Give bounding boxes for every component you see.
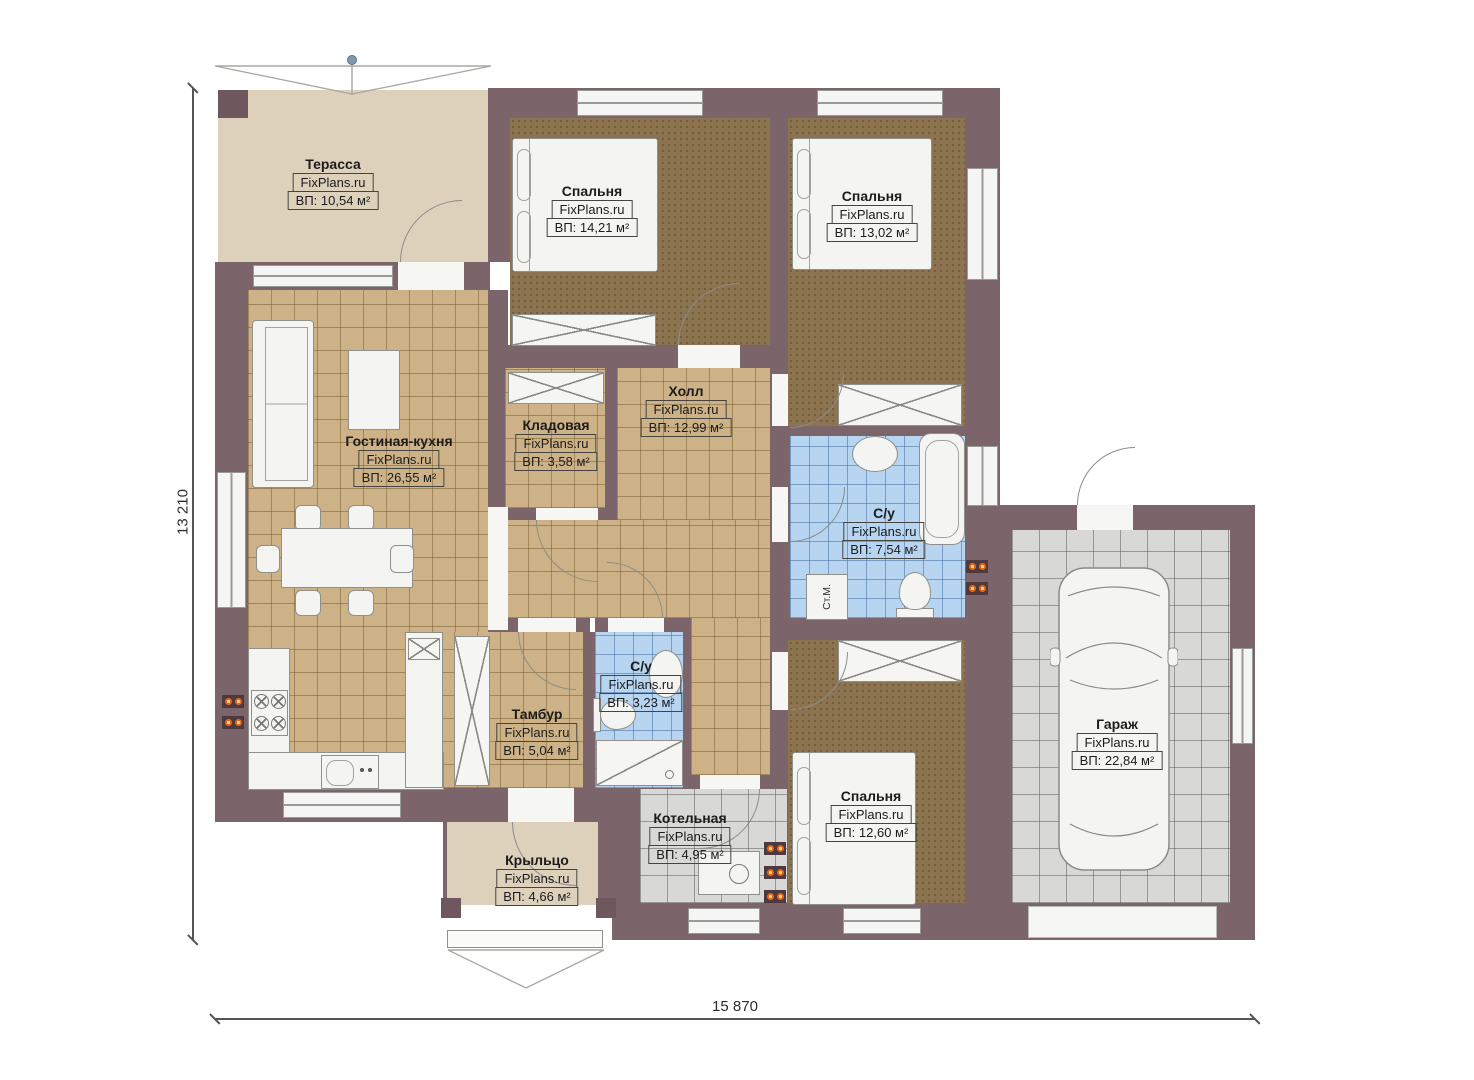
watermark: FixPlans.ru bbox=[496, 723, 577, 742]
door-opening bbox=[398, 262, 464, 290]
room-label-bathroom-small: С/у FixPlans.ru ВП: 3,23 м² bbox=[599, 658, 682, 712]
watermark: FixPlans.ru bbox=[645, 400, 726, 419]
faucet-dot bbox=[368, 768, 372, 772]
porch-step bbox=[447, 930, 603, 948]
radiator bbox=[966, 582, 988, 595]
watermark: FixPlans.ru bbox=[843, 522, 924, 541]
door-opening bbox=[700, 775, 760, 789]
room-name: Кладовая bbox=[514, 417, 597, 433]
room-area: ВП: 22,84 м² bbox=[1072, 751, 1163, 770]
room-name: Котельная bbox=[648, 810, 731, 826]
radiator bbox=[222, 695, 244, 708]
room-label-porch: Крыльцо FixPlans.ru ВП: 4,66 м² bbox=[495, 852, 578, 906]
door-opening bbox=[508, 788, 574, 822]
room-label-storage: Кладовая FixPlans.ru ВП: 3,58 м² bbox=[514, 417, 597, 471]
room-label-bedroom-3: Спальня FixPlans.ru ВП: 12,60 м² bbox=[826, 788, 917, 842]
room-name: Гостиная-кухня bbox=[345, 433, 452, 449]
faucet-dot bbox=[360, 768, 364, 772]
wall bbox=[598, 822, 612, 906]
door-opening bbox=[772, 374, 788, 426]
window bbox=[967, 446, 998, 506]
room-label-bedroom-1: Спальня FixPlans.ru ВП: 14,21 м² bbox=[547, 183, 638, 237]
room-name: Тамбур bbox=[495, 706, 578, 722]
room-area: ВП: 14,21 м² bbox=[547, 218, 638, 237]
stove-burner bbox=[254, 716, 269, 731]
room-area: ВП: 3,58 м² bbox=[514, 452, 597, 471]
floor-plan: Ст.М. Терасса FixPlans.ru ВП: 10,54 м² bbox=[0, 0, 1474, 1080]
window bbox=[283, 792, 401, 818]
sofa bbox=[252, 320, 314, 488]
porch-post bbox=[596, 898, 616, 918]
wardrobe bbox=[838, 640, 962, 682]
sink-basin bbox=[326, 760, 354, 786]
radiator bbox=[764, 842, 786, 855]
room-name: С/у bbox=[599, 658, 682, 674]
shower-drain bbox=[665, 770, 674, 779]
room-area: ВП: 4,95 м² bbox=[648, 845, 731, 864]
wall bbox=[683, 632, 691, 777]
watermark: FixPlans.ru bbox=[515, 434, 596, 453]
pillow bbox=[797, 209, 811, 259]
wardrobe bbox=[512, 314, 656, 346]
radiator bbox=[764, 866, 786, 879]
room-area: ВП: 7,54 м² bbox=[842, 540, 925, 559]
room-label-hall: Холл FixPlans.ru ВП: 12,99 м² bbox=[641, 383, 732, 437]
room-label-bedroom-2: Спальня FixPlans.ru ВП: 13,02 м² bbox=[827, 188, 918, 242]
terrace-roof-outline bbox=[213, 52, 493, 98]
door-swing bbox=[1077, 447, 1135, 505]
washing-machine-label: Ст.М. bbox=[821, 584, 833, 610]
room-area: ВП: 10,54 м² bbox=[288, 191, 379, 210]
room-name: Спальня bbox=[547, 183, 638, 199]
room-name: Спальня bbox=[827, 188, 918, 204]
dimension-width-label: 15 870 bbox=[712, 998, 758, 1015]
garage-door-opening bbox=[1028, 906, 1217, 938]
sofa-seat bbox=[265, 327, 308, 481]
room-area: ВП: 3,23 м² bbox=[599, 693, 682, 712]
room-label-terrace: Терасса FixPlans.ru ВП: 10,54 м² bbox=[288, 156, 379, 210]
door-opening bbox=[678, 345, 740, 368]
room-area: ВП: 5,04 м² bbox=[495, 741, 578, 760]
pillow bbox=[797, 837, 811, 895]
window bbox=[967, 168, 998, 280]
stove bbox=[251, 690, 288, 736]
watermark: FixPlans.ru bbox=[551, 200, 632, 219]
pillow bbox=[797, 767, 811, 825]
kitchen-sink bbox=[321, 755, 379, 789]
wall bbox=[788, 618, 965, 640]
boiler-dial bbox=[729, 864, 749, 884]
dining-chair bbox=[390, 545, 414, 573]
door-opening bbox=[1077, 505, 1133, 530]
wardrobe bbox=[838, 384, 962, 426]
room-name: Гараж bbox=[1072, 716, 1163, 732]
radiator bbox=[764, 890, 786, 903]
watermark: FixPlans.ru bbox=[1076, 733, 1157, 752]
window bbox=[577, 90, 703, 116]
room-area: ВП: 12,60 м² bbox=[826, 823, 917, 842]
coffee-table bbox=[348, 350, 400, 430]
window bbox=[817, 90, 943, 116]
room-name: Крыльцо bbox=[495, 852, 578, 868]
floorplan-page: { "watermark": "FixPlans.ru", "dimension… bbox=[0, 0, 1474, 1080]
window bbox=[843, 908, 921, 934]
room-hall-floor-c bbox=[691, 618, 770, 775]
sink bbox=[852, 436, 898, 472]
door-opening bbox=[772, 652, 788, 710]
room-name: С/у bbox=[842, 505, 925, 521]
radiator bbox=[222, 716, 244, 729]
window bbox=[1232, 648, 1253, 744]
wall bbox=[605, 368, 617, 508]
pillow bbox=[517, 149, 531, 201]
room-label-tambour: Тамбур FixPlans.ru ВП: 5,04 м² bbox=[495, 706, 578, 760]
dining-chair bbox=[256, 545, 280, 573]
bathtub bbox=[919, 433, 965, 545]
room-label-garage: Гараж FixPlans.ru ВП: 22,84 м² bbox=[1072, 716, 1163, 770]
bathtub-inner bbox=[925, 440, 959, 538]
wall bbox=[488, 118, 510, 262]
pillow bbox=[797, 149, 811, 199]
washing-machine: Ст.М. bbox=[806, 574, 848, 620]
door-opening bbox=[772, 487, 788, 542]
window bbox=[217, 472, 246, 608]
pillow bbox=[517, 211, 531, 263]
watermark: FixPlans.ru bbox=[358, 450, 439, 469]
wardrobe bbox=[508, 372, 604, 404]
wardrobe bbox=[454, 636, 490, 786]
dining-chair bbox=[295, 590, 321, 616]
room-name: Холл bbox=[641, 383, 732, 399]
watermark: FixPlans.ru bbox=[600, 675, 681, 694]
room-area: ВП: 4,66 м² bbox=[495, 887, 578, 906]
porch-canopy-outline bbox=[446, 946, 606, 992]
door-opening bbox=[608, 618, 664, 632]
dining-chair bbox=[348, 590, 374, 616]
room-label-boiler-room: Котельная FixPlans.ru ВП: 4,95 м² bbox=[648, 810, 731, 864]
room-area: ВП: 12,99 м² bbox=[641, 418, 732, 437]
passage-opening bbox=[488, 507, 508, 630]
room-label-living-kitchen: Гостиная-кухня FixPlans.ru ВП: 26,55 м² bbox=[345, 433, 452, 487]
window bbox=[253, 265, 393, 287]
porch-post bbox=[441, 898, 461, 918]
fridge bbox=[408, 638, 440, 660]
dimension-height-label: 13 210 bbox=[175, 489, 192, 535]
door-opening bbox=[518, 618, 576, 632]
toilet bbox=[899, 572, 931, 610]
room-label-bathroom-main: С/у FixPlans.ru ВП: 7,54 м² bbox=[842, 505, 925, 559]
room-name: Спальня bbox=[826, 788, 917, 804]
door-opening bbox=[536, 508, 598, 520]
room-name: Терасса bbox=[288, 156, 379, 172]
stove-burner bbox=[271, 694, 286, 709]
watermark: FixPlans.ru bbox=[496, 869, 577, 888]
radiator bbox=[966, 560, 988, 573]
room-area: ВП: 13,02 м² bbox=[827, 223, 918, 242]
watermark: FixPlans.ru bbox=[830, 805, 911, 824]
stove-burner bbox=[254, 694, 269, 709]
shower-tray bbox=[596, 740, 683, 786]
room-area: ВП: 26,55 м² bbox=[354, 468, 445, 487]
dimension-line-vertical bbox=[192, 88, 194, 940]
watermark: FixPlans.ru bbox=[649, 827, 730, 846]
watermark: FixPlans.ru bbox=[292, 173, 373, 192]
watermark: FixPlans.ru bbox=[831, 205, 912, 224]
dimension-line-horizontal bbox=[215, 1018, 1255, 1020]
window bbox=[688, 908, 760, 934]
stove-burner bbox=[271, 716, 286, 731]
